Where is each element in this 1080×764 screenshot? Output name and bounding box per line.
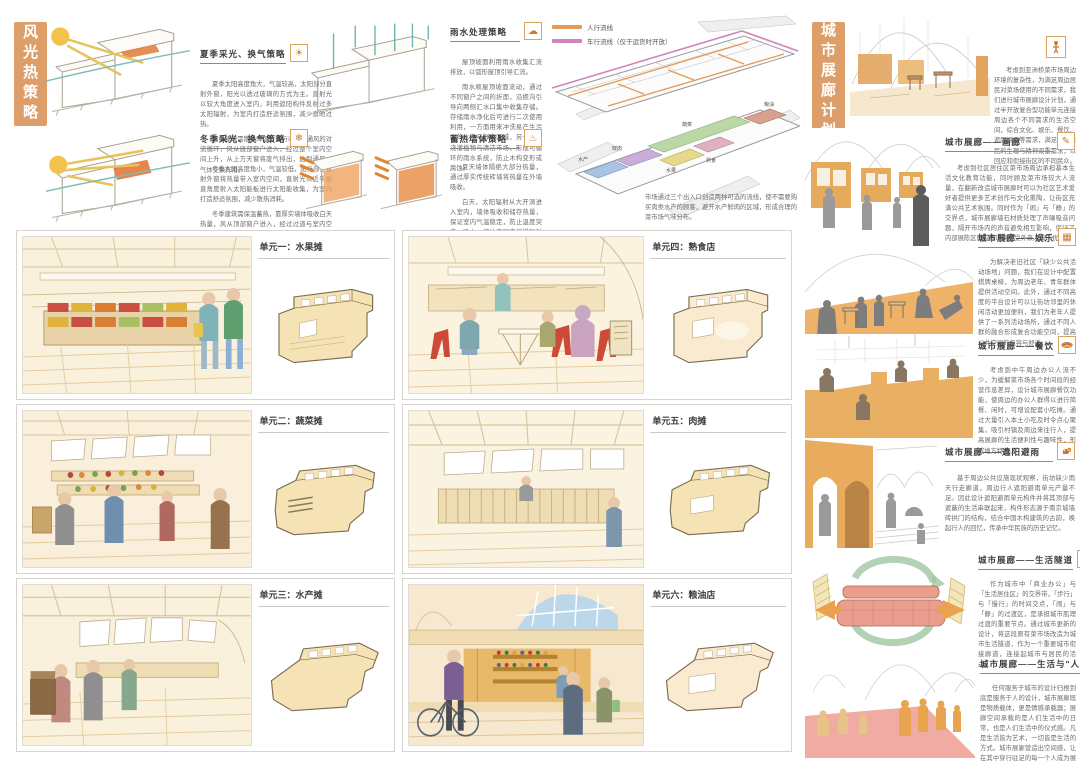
unit-panel-grain-oil: 单元六：粮油店: [402, 578, 792, 752]
vehicle-line-swatch: [552, 39, 582, 43]
unit-panel-deli: 单元四：熟食店: [402, 230, 792, 400]
left-title-text: 风光热策略: [20, 24, 41, 124]
life-people-heading-row: 城市展廊——生活与"人": [980, 658, 1076, 674]
life-people-heading: 城市展廊——生活与"人": [980, 658, 1080, 674]
unit-seafood-label: 单元三：水产摊: [258, 584, 389, 607]
legend-pedestrian: 人行流线: [552, 22, 672, 32]
zone-label-seafood: 水产: [578, 156, 588, 163]
dining-image: [805, 334, 973, 438]
winter-strategy-heading: 冬季采光、换气策略: [200, 133, 286, 149]
zone-label-grocery: 粮油: [764, 101, 774, 108]
summer-strategy-heading-row: 夏季采光、换气策略 ☀: [200, 48, 308, 64]
rainwater-strategy-heading-row: 雨水处理策略 ☁: [450, 26, 542, 42]
gallery-image: [805, 128, 940, 246]
life-tunnel-diagram: [805, 548, 973, 656]
intro-gallery-image: [850, 14, 990, 116]
life-tunnel-heading-row: 城市展廊——生活隧道 ↻: [978, 554, 1076, 570]
summer-strategy-heading: 夏季采光、换气策略: [200, 48, 286, 64]
heat-wall-icon: ♨: [524, 129, 542, 147]
winter-strategy-diagram: [42, 128, 194, 230]
sun-symbol: [51, 27, 69, 45]
clerk-figure: [495, 273, 511, 311]
zone-label-meat: 鲜肉: [612, 145, 622, 152]
pencil-icon: ✎: [1057, 132, 1075, 150]
dining-heading-row: 城市展廊——餐饮: [978, 340, 1076, 356]
shading-heading: 城市展廊——遮阳避雨: [945, 446, 1053, 462]
heat-arrows: [300, 157, 314, 179]
unit-fruit-axon: [258, 259, 389, 394]
entertainment-heading-row: 城市展廊——娱乐 ▦: [978, 232, 1076, 248]
seated-figure-2: [540, 311, 556, 347]
shading-image: [805, 440, 940, 550]
thermal-wall-heading-row: 蓄热墙体策略 ♨: [450, 133, 542, 149]
unit-panel-seafood: 单元三：水产摊: [16, 578, 395, 752]
unit-seafood-axon: [258, 607, 389, 746]
unit-fruit-photo: [22, 236, 252, 394]
life-tunnel-heading: 城市展廊——生活隧道: [978, 554, 1073, 570]
mahjong-tiles-icon: ▦: [1058, 228, 1076, 246]
zone-label-fruit: 水果: [666, 167, 676, 174]
unit-deli-label: 单元四：熟食店: [650, 236, 786, 259]
exhibit-person-icon: [1046, 36, 1066, 58]
unit-meat-photo: [408, 410, 644, 568]
winter-strategy-heading-row: 冬季采光、换气策略 ❄: [200, 133, 308, 149]
summer-strategy-diagram: [42, 22, 194, 124]
thermal-wall-diagrams: [298, 133, 446, 228]
thermal-wall-heading: 蓄热墙体策略: [450, 133, 520, 149]
unit-vegetable-axon: [258, 433, 389, 568]
crate: [32, 507, 51, 533]
squirrel-icon: [1057, 442, 1075, 460]
heat-glow: [399, 163, 435, 202]
unit-deli-photo: [408, 236, 644, 394]
sun-symbol: [49, 156, 67, 174]
rainwater-strategy-text: 屋顶坡面利用雨水收集汇流排放，以弧形屋顶引导汇流。 雨水顺屋顶坡面流动，通过不同…: [450, 58, 542, 179]
poster-board: 风光热策略 夏季采光、换气策略 ☀ 夏季太阳高度角大，气温较高，太阳部分直射外窗…: [0, 0, 1080, 764]
pedestrian-line-swatch: [552, 25, 582, 29]
right-column-title: 城市展廊计划: [812, 22, 845, 142]
shading-text: 基于周边公共设施现状观察，街坊缺少雨天行走廊道，周边行人遮阳避雨单元产量不足。因…: [945, 474, 1075, 539]
unit-panel-vegetable: 单元二：蔬菜摊: [16, 404, 395, 574]
unit-vegetable-label: 单元二：蔬菜摊: [258, 410, 389, 433]
unit-grain-oil-photo: [408, 584, 644, 746]
gallery-heading: 城市展廊——画廊: [945, 136, 1053, 152]
unit-seafood-photo: [22, 584, 252, 746]
unit-grain-oil-axon: [650, 607, 786, 746]
unit-grain-oil-label: 单元六：粮油店: [650, 584, 786, 607]
unit-panel-fruit: 单元一：水果摊: [16, 230, 395, 400]
zone-label-veg: 蔬菜: [682, 121, 692, 128]
unit-deli-axon: [650, 259, 786, 394]
entertainment-heading: 城市展廊——娱乐: [978, 232, 1054, 248]
unit-fruit-label: 单元一：水果摊: [258, 236, 389, 259]
unit-panel-meat: 单元五：肉摊: [402, 404, 792, 574]
crate: [31, 679, 56, 714]
rainwater-strategy-diagram: [298, 22, 446, 124]
legend-vehicle: 车行流线（仅于运货时开放）: [552, 36, 672, 46]
axon-caption: 市场通过三个出入口创造两种可选的流线，使不需要购买肉类水产的顾客，避开水产鲜肉的…: [645, 193, 797, 223]
gallery-heading-row: 城市展廊——画廊 ✎: [945, 136, 1075, 152]
snack-icon: [1058, 336, 1076, 354]
shopper-figure: [606, 497, 622, 547]
zone-label-deli: 熟食: [706, 157, 716, 164]
shading-heading-row: 城市展廊——遮阳避雨: [945, 446, 1075, 462]
flow-legend: 人行流线 车行流线（仅于运货时开放）: [552, 22, 672, 50]
heat-arrows: [375, 157, 389, 179]
figure-3: [160, 491, 175, 541]
heat-glow: [324, 163, 360, 202]
right-title-text: 城市展廊计划: [818, 22, 839, 142]
figure-3: [122, 659, 137, 710]
unit-meat-label: 单元五：肉摊: [650, 410, 786, 433]
life-people-text: 任何服务于城市的设计归根到底是服务于人的设计，城市展廊既是物质载体，更是情感承载…: [980, 684, 1076, 764]
life-people-image: [805, 652, 975, 758]
rainwater-strategy-heading: 雨水处理策略: [450, 26, 520, 42]
intro-text: 考虑到亚洲桥菜市场周边环境的复杂性，为满足周边居民对菜场使用的不同需求，我们进行…: [994, 66, 1076, 172]
unit-vegetable-photo: [22, 410, 252, 568]
dining-heading: 城市展廊——餐饮: [978, 340, 1054, 356]
rain-cloud-icon: ☁: [524, 22, 542, 40]
unit-meat-axon: [650, 433, 786, 568]
menu-board: [610, 321, 631, 355]
